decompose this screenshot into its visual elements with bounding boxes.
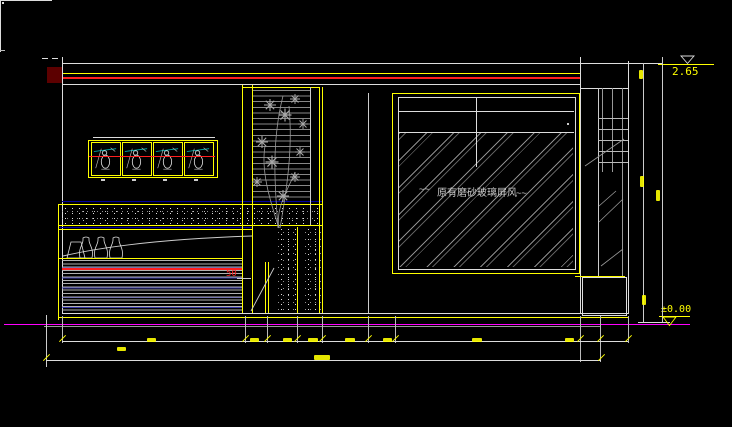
- gap-leader-line: [237, 278, 251, 279]
- dim-text-blob: [283, 338, 292, 342]
- glass-note-squiggle-right: ~~: [516, 190, 527, 199]
- dim-text-blob: [117, 347, 126, 351]
- louver-red-line: [62, 268, 242, 270]
- level-triangle-top: [681, 56, 694, 64]
- vases-sketch: [62, 230, 254, 259]
- gap-dimension-label: 50: [226, 270, 237, 279]
- glass-note-squiggle-left: ~~: [419, 186, 430, 195]
- display-box: [91, 142, 121, 176]
- display-red-line: [89, 156, 215, 157]
- dim-text-blob: [147, 338, 156, 342]
- dim-text-blob: [472, 338, 482, 342]
- dim-text-blob: [639, 70, 643, 79]
- dim-text-blob: [565, 338, 574, 342]
- display-box: [184, 142, 214, 176]
- dim-text-blob: [345, 338, 355, 342]
- dim-text-blob: [250, 338, 259, 342]
- dim-text-blob: [314, 355, 330, 360]
- level-top-value: 2.65: [672, 66, 699, 77]
- crown-red-line: [62, 77, 580, 79]
- display-box: [153, 142, 183, 176]
- dim-text-blob: [640, 176, 644, 187]
- cad-elevation-canvas: 50 ~~ 原有磨砂玻璃屏风 ~~ 2.65 ±0.00: [0, 0, 732, 427]
- dim-overall-line: [46, 360, 601, 361]
- dim-text-blob: [656, 190, 660, 201]
- plant-art: [245, 88, 315, 236]
- side-panel-hatch: [585, 139, 624, 266]
- floor-line-magenta: [4, 324, 690, 325]
- right-base-cabinet: [582, 277, 627, 316]
- dim-text-blob: [308, 338, 318, 342]
- level-bottom-value: ±0.00: [661, 305, 691, 315]
- dim-text-blob: [642, 295, 646, 305]
- glass-note-text: 原有磨砂玻璃屏风: [437, 189, 517, 199]
- dim-text-blob: [383, 338, 392, 342]
- display-box: [122, 142, 152, 176]
- glass-hatch: [399, 133, 573, 267]
- door-swing-line: [251, 268, 274, 311]
- crown-end-block: [47, 67, 62, 83]
